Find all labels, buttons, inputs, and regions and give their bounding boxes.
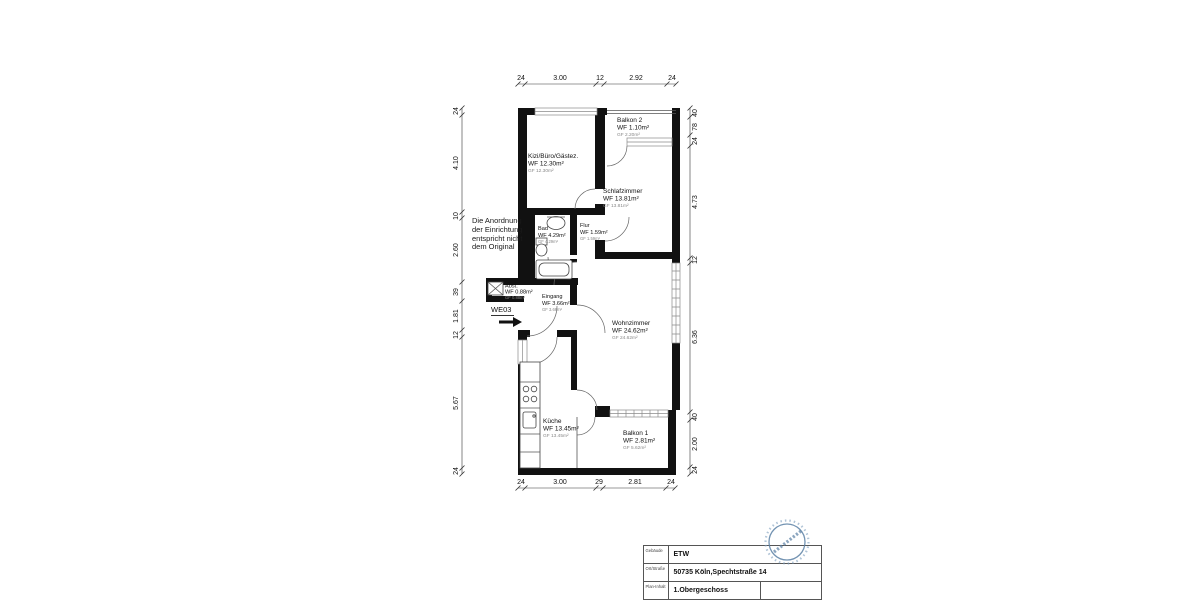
titleblock-row-planinhalt: Plan-Inhalt 1.Obergeschoss: [644, 582, 821, 599]
dim-top-4: 24: [668, 75, 676, 82]
dim-right-1: 78: [692, 123, 699, 131]
dim-left-2: 10: [453, 212, 460, 220]
room-label-kueche: Küche WF 13.45m² GF 13.45m²: [543, 418, 580, 439]
dim-right-5: 6.36: [692, 330, 699, 344]
titleblock-empty-cell: [760, 582, 821, 599]
dim-right-3: 4.73: [692, 195, 699, 209]
dim-bottom-1: 3.00: [553, 479, 567, 486]
svg-text:WF 24.62m²: WF 24.62m²: [612, 328, 649, 335]
svg-text:GF 12.30m²: GF 12.30m²: [528, 168, 554, 174]
dim-left-1: 4.10: [453, 156, 460, 170]
titleblock-value: 1.Obergeschoss: [669, 582, 761, 599]
floorplan-page: { "plan": { "note": "Die Anordnung\nder …: [0, 0, 1200, 600]
dim-right-6: 40: [692, 413, 699, 421]
dim-right-7: 2.00: [692, 437, 699, 451]
svg-text:GF 5.62m²: GF 5.62m²: [623, 445, 646, 451]
svg-text:GF 0.88m²: GF 0.88m²: [505, 295, 526, 300]
svg-text:GF 4.29m²: GF 4.29m²: [538, 239, 559, 244]
svg-text:GF 3.66m²: GF 3.66m²: [542, 307, 563, 312]
svg-text:WF 13.45m²: WF 13.45m²: [543, 426, 580, 433]
room-label-eingang: Eingang WF 3.66m² GF 3.66m²: [542, 294, 570, 312]
entrance-arrow-icon: [499, 317, 522, 327]
room-label-wohnzimmer: Wohnzimmer WF 24.62m² GF 24.62m²: [612, 320, 651, 341]
dim-left-3: 2.60: [453, 243, 460, 257]
dim-left-7: 5.67: [453, 396, 460, 410]
svg-text:WF 2.81m²: WF 2.81m²: [623, 438, 656, 445]
svg-text:GF 13.81m²: GF 13.81m²: [603, 203, 629, 209]
dim-top-1: 3.00: [553, 75, 567, 82]
dim-top-2: 12: [596, 75, 604, 82]
svg-text:Wohnzimmer: Wohnzimmer: [612, 320, 651, 327]
svg-text:GF 13.45m²: GF 13.45m²: [543, 433, 569, 439]
titleblock-label: Ort/Straße: [644, 564, 669, 581]
titleblock-label: Gebäude: [644, 546, 669, 563]
dim-bottom-4: 24: [667, 479, 675, 486]
room-label-schlafzimmer: Schlafzimmer WF 13.81m² GF 13.81m²: [603, 188, 643, 209]
stamp: [758, 514, 822, 578]
room-label-balkon2: Balkon 2 WF 1.10m² GF 2.20m²: [617, 117, 650, 138]
svg-text:Küche: Küche: [543, 418, 562, 425]
apartment-entrance-label: WE03: [491, 305, 514, 316]
room-label-kizi: Kizi/Büro/Gästez. WF 12.30m² GF 12.30m²: [528, 153, 578, 174]
svg-text:WF 13.81m²: WF 13.81m²: [603, 196, 640, 203]
svg-text:Balkon 2: Balkon 2: [617, 117, 643, 124]
dim-right-0: 40: [692, 109, 699, 117]
svg-text:Eingang: Eingang: [542, 294, 563, 300]
svg-text:Flur: Flur: [580, 223, 590, 229]
svg-text:Schlafzimmer: Schlafzimmer: [603, 188, 643, 195]
dim-bottom-2: 29: [595, 479, 603, 486]
stamp-text-mark: [774, 531, 801, 552]
dim-left-0: 24: [453, 107, 460, 115]
dim-left-8: 24: [453, 467, 460, 475]
svg-text:Kizi/Büro/Gästez.: Kizi/Büro/Gästez.: [528, 153, 578, 160]
dim-top-0: 24: [517, 75, 525, 82]
dim-top-3: 2.92: [629, 75, 643, 82]
dim-bottom-0: 24: [517, 479, 525, 486]
svg-text:GF 1.59m²: GF 1.59m²: [580, 236, 601, 241]
dim-left-5: 1.81: [453, 309, 460, 323]
svg-text:WF 12.30m²: WF 12.30m²: [528, 161, 565, 168]
bath-sink: [547, 217, 565, 230]
titleblock-label: Plan-Inhalt: [644, 582, 669, 599]
arrangement-note: Die Anordnung der Einrichtung entspricht…: [472, 217, 534, 252]
dim-right-4: 12: [692, 256, 699, 264]
svg-text:GF 24.62m²: GF 24.62m²: [612, 335, 638, 341]
room-label-abst: Abst. WF 0.88m² GF 0.88m²: [505, 284, 533, 301]
dim-bottom-3: 2.81: [628, 479, 642, 486]
svg-text:Balkon 1: Balkon 1: [623, 430, 649, 437]
kitchen-counter: [520, 362, 540, 468]
svg-text:WF 1.10m²: WF 1.10m²: [617, 125, 650, 132]
dim-left-4: 39: [453, 288, 460, 296]
dim-right-8: 24: [692, 466, 699, 474]
svg-text:Bad: Bad: [538, 226, 548, 232]
dim-left-6: 12: [453, 331, 460, 339]
floor-plan-drawing: Kizi/Büro/Gästez. WF 12.30m² GF 12.30m² …: [0, 0, 1200, 600]
room-label-flur: Flur WF 1.59m² GF 1.59m²: [580, 223, 608, 241]
room-label-balkon1: Balkon 1 WF 2.81m² GF 5.62m²: [623, 430, 656, 451]
dim-right-2: 24: [692, 137, 699, 145]
svg-text:GF 2.20m²: GF 2.20m²: [617, 132, 640, 138]
storage-shelf: [488, 282, 503, 295]
bathtub: [536, 260, 572, 279]
